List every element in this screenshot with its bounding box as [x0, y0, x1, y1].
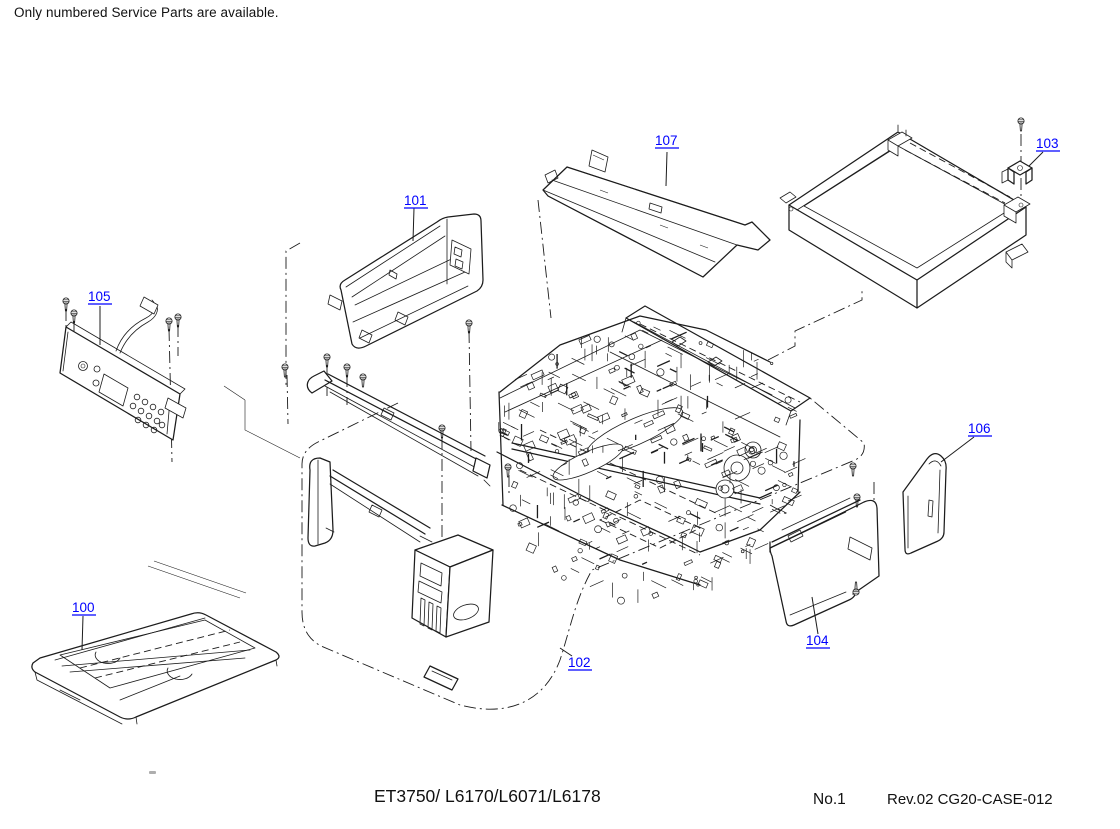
service-parts-page: Only numbered Service Parts are availabl… [0, 0, 1120, 829]
part-106-label: 106 [968, 421, 991, 436]
part-103-bracket [1002, 161, 1032, 184]
front-frame-rail [307, 371, 490, 486]
part-106-cover [903, 454, 946, 554]
printer-chassis [497, 306, 810, 604]
part-100-paper-tray [32, 613, 279, 724]
part-104-label: 104 [806, 633, 829, 648]
part-107-label: 107 [655, 133, 678, 148]
part-102-front-housing [308, 458, 493, 690]
part-107-top-cover [543, 150, 770, 277]
part-101-label: 101 [404, 193, 427, 208]
exploded-parts-diagram: 100 101 102 103 104 105 106 107 [0, 0, 1120, 829]
part-101-side-cover [328, 214, 483, 348]
sheet-number: No.1 [813, 791, 846, 809]
scanner-frame-tray [780, 125, 1032, 308]
part-100-label: 100 [72, 600, 95, 615]
part-103-label: 103 [1036, 136, 1059, 151]
revision-code: Rev.02 CG20-CASE-012 [887, 791, 1053, 808]
part-102-label: 102 [568, 655, 591, 670]
stray-print-mark [149, 771, 156, 774]
chassis-detail-hatch [499, 321, 806, 604]
part-105-label: 105 [88, 289, 111, 304]
model-title: ET3750/ L6170/L6071/L6178 [374, 786, 601, 807]
part-104-side-cover [770, 498, 879, 626]
